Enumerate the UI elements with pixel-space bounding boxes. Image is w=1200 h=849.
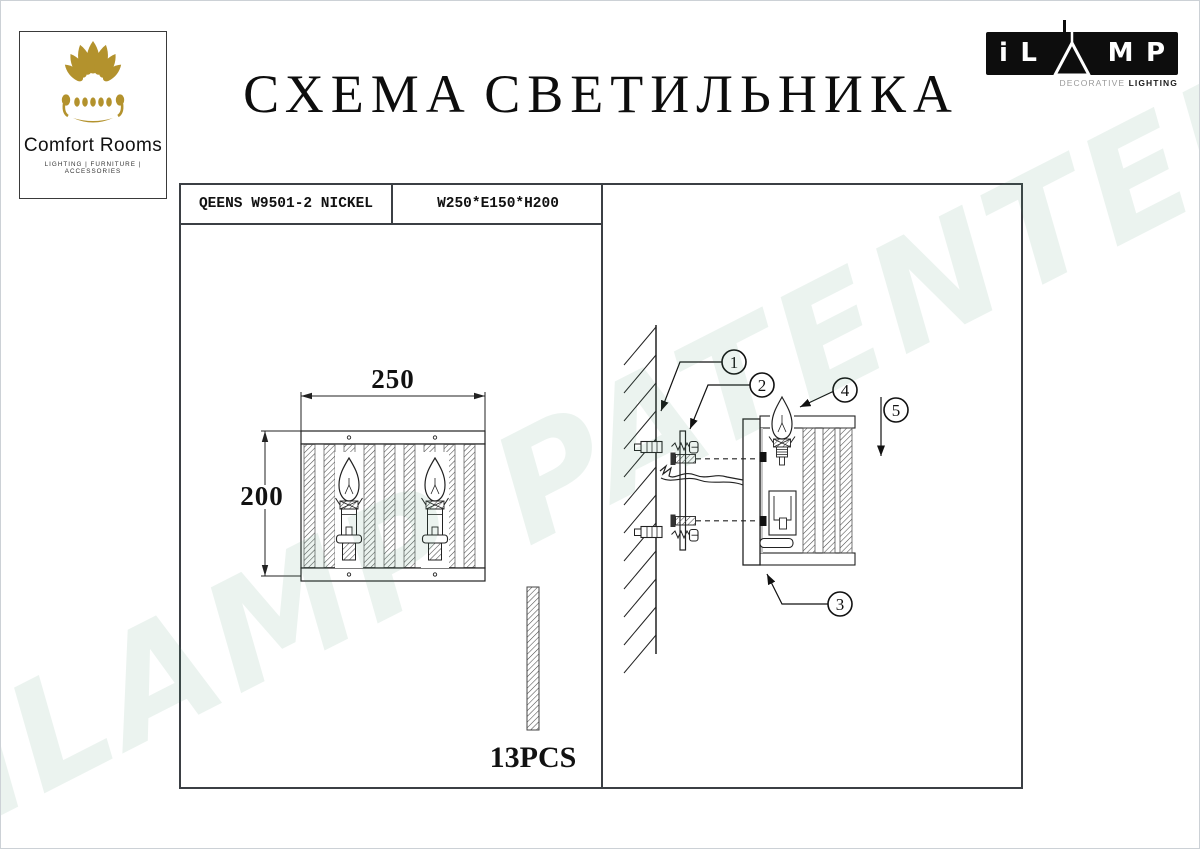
sconce-side-body bbox=[743, 397, 855, 565]
comfort-rooms-name: Comfort Rooms bbox=[20, 135, 166, 157]
crystal-stripes bbox=[304, 445, 475, 568]
ilamp-letter-i: i bbox=[999, 32, 1008, 75]
pcs-label: 13PCS bbox=[490, 741, 577, 774]
dimension-250: 250 bbox=[301, 364, 485, 431]
candle-bulb-right bbox=[421, 452, 449, 568]
ilamp-logo: i L M P bbox=[986, 32, 1178, 75]
ilamp-letter-p: P bbox=[1146, 32, 1165, 75]
bottom-foot bbox=[760, 539, 793, 548]
wall-hatch bbox=[624, 327, 656, 673]
svg-text:1: 1 bbox=[730, 353, 739, 372]
callout-4: 4 bbox=[800, 378, 857, 407]
callout-2-leader bbox=[690, 385, 750, 429]
callout-3-leader bbox=[767, 574, 828, 604]
svg-text:2: 2 bbox=[758, 376, 767, 395]
wall-anchor-top bbox=[635, 442, 663, 453]
size-cell: W250*E150*H200 bbox=[393, 185, 603, 223]
wall-anchor-bottom bbox=[635, 527, 663, 538]
wall bbox=[624, 325, 656, 673]
shade-stripes bbox=[803, 428, 852, 553]
width-dimension-label: 250 bbox=[371, 364, 415, 394]
svg-text:5: 5 bbox=[892, 401, 901, 420]
callout-1: 1 bbox=[661, 350, 746, 411]
lighting-label: LIGHTING bbox=[1129, 78, 1178, 88]
svg-text:4: 4 bbox=[841, 381, 850, 400]
front-view-panel: 250 200 bbox=[181, 225, 603, 789]
ilamp-letter-m: M bbox=[1108, 32, 1134, 75]
page-title: СХЕМА СВЕТИЛЬНИКА bbox=[181, 63, 1021, 125]
schematic-box: QEENS W9501-2 NICKEL W250*E150*H200 bbox=[179, 183, 1023, 789]
ilamp-sublabel: DECORATIVE LIGHTING bbox=[986, 78, 1178, 88]
decorative-label: DECORATIVE bbox=[1059, 78, 1128, 88]
crown-icon bbox=[33, 40, 153, 132]
svg-text:3: 3 bbox=[836, 595, 845, 614]
callout-3: 3 bbox=[767, 574, 852, 616]
crystal-rod-sample: 13PCS bbox=[490, 587, 577, 774]
power-wire bbox=[660, 466, 743, 485]
front-view-lamp bbox=[301, 431, 485, 581]
pendant-lamp-icon bbox=[1049, 32, 1095, 75]
back-plate bbox=[743, 419, 760, 565]
ilamp-letter-l: L bbox=[1020, 32, 1037, 75]
dimension-200: 200 bbox=[240, 431, 301, 576]
terminal-top bbox=[760, 452, 767, 462]
callout-4-leader bbox=[800, 392, 833, 408]
candle-bulb-left bbox=[335, 452, 363, 568]
callout-5: 5 bbox=[881, 397, 908, 456]
height-dimension-label: 200 bbox=[240, 481, 284, 511]
candle-bulb-side bbox=[769, 397, 795, 465]
schematic-page: Comfort Rooms LIGHTING | FURNITURE | ACC… bbox=[0, 0, 1200, 849]
terminal-bottom bbox=[760, 516, 767, 526]
comfort-rooms-tagline: LIGHTING | FURNITURE | ACCESSORIES bbox=[20, 161, 166, 175]
spec-header: QEENS W9501-2 NICKEL W250*E150*H200 bbox=[181, 185, 603, 225]
socket-block bbox=[769, 491, 796, 535]
side-view-panel: 1 2 4 5 3 bbox=[603, 185, 1023, 787]
model-cell: QEENS W9501-2 NICKEL bbox=[181, 185, 393, 223]
comfort-rooms-logo: Comfort Rooms LIGHTING | FURNITURE | ACC… bbox=[19, 31, 167, 199]
callout-1-leader bbox=[661, 362, 722, 411]
